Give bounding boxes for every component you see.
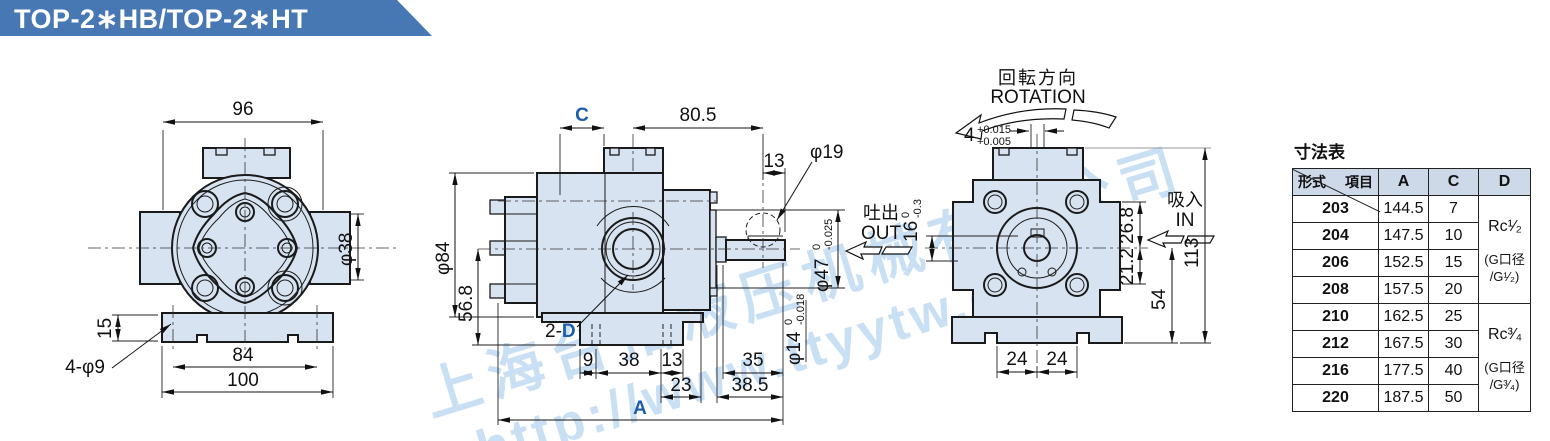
page-title: TOP-2∗HB/TOP-2∗HT [14,4,308,34]
d-main-label: Rc¹⁄₂ [1480,218,1530,236]
svg-text:φ47: φ47 [812,259,833,292]
a-cell: 157.5 [1379,277,1429,304]
model-cell: 206 [1293,250,1379,277]
d-group-cell: Rc¹⁄₂ (G口径 /G¹⁄₂) [1479,196,1531,304]
c-cell: 20 [1429,277,1479,304]
model-cell: 216 [1293,358,1379,385]
table-row: 210 162.5 25 Rc³⁄₄ (G口径 /G³⁄₄) [1293,304,1531,331]
svg-text:-0.3: -0.3 [912,199,924,218]
a-cell: 144.5 [1379,196,1429,223]
dim-side-body-dia: φ84 [433,241,454,275]
c-cell: 7 [1429,196,1479,223]
outlet-arrow-band [882,247,912,254]
dim-side-seg6: 38.5 [732,375,769,396]
dimension-table-title: 寸法表 [1294,138,1542,163]
table-corner-cell: 項目 形式 [1293,169,1379,196]
dim-rear-base-width: 100 [227,370,259,391]
dim-side-seg5: 23 [670,375,691,396]
svg-text:4: 4 [964,125,975,146]
a-cell: 162.5 [1379,304,1429,331]
a-cell: 152.5 [1379,250,1429,277]
a-cell: 187.5 [1379,385,1429,412]
corner-item-label: 項目 [1345,172,1373,192]
c-cell: 40 [1429,358,1479,385]
a-cell: 177.5 [1379,358,1429,385]
svg-text:+0.005: +0.005 [977,136,1011,148]
rotation-arrow-band [1072,110,1116,128]
inlet-label-jp: 吸入 [1167,190,1203,210]
inlet-label-en: IN [1176,210,1195,231]
dim-side-key-len: 13 [763,151,784,172]
drawing-page: .f{fill:#d8e3f1;stroke:#1a1a1a;stroke-wi… [0,0,1550,441]
dim-side-top: 80.5 [680,105,717,126]
pump-drawing: .f{fill:#d8e3f1;stroke:#1a1a1a;stroke-wi… [0,0,1290,441]
c-cell: 25 [1429,304,1479,331]
dimension-table: 寸法表 項目 形式 A C D 203 144.5 7 Rc¹⁄₂ (G口径 /… [1292,138,1542,412]
dim-side-seg4: 35 [742,350,763,371]
svg-text:φ14: φ14 [784,331,805,365]
outlet-label-jp: 吐出 [863,203,899,223]
svg-text:-0.025: -0.025 [823,219,835,250]
model-cell: 204 [1293,223,1379,250]
dim-rear-holes: 4-φ9 [65,357,105,378]
table-header-row: 項目 形式 A C D [1293,169,1531,196]
dim-side-total: A [633,398,647,419]
rotation-label-jp: 回転方向 [998,68,1078,88]
model-cell: 212 [1293,331,1379,358]
dim-rear-port-dia: φ38 [336,233,357,266]
corner-model-label: 形式 [1298,172,1326,192]
d-note-line1: (G口径 [1479,360,1530,376]
a-cell: 167.5 [1379,331,1429,358]
a-cell: 147.5 [1379,223,1429,250]
dim-side-seg3: 13 [661,350,682,371]
dim-side-lower: 56.8 [456,285,477,322]
c-cell: 50 [1429,385,1479,412]
svg-text:+0.015: +0.015 [977,124,1011,136]
outlet-label-en: OUT [861,223,902,244]
dim-rear-foot-height: 15 [95,318,116,339]
model-cell: 220 [1293,385,1379,412]
c-cell: 30 [1429,331,1479,358]
c-cell: 10 [1429,223,1479,250]
svg-text:16: 16 [901,221,922,242]
rear-view: 96 φ38 15 4-φ9 84 100 [65,99,400,398]
dim-front-bolt-l: 24 [1006,349,1028,370]
svg-text:0: 0 [811,244,823,250]
d-main-label: Rc³⁄₄ [1480,326,1530,344]
col-header-d: D [1479,169,1531,196]
dim-side-key-circle: φ19 [810,142,843,163]
model-cell: 203 [1293,196,1379,223]
d-group-cell: Rc³⁄₄ (G口径 /G³⁄₄) [1479,304,1531,412]
dim-side-c: C [575,105,589,126]
dim-side-seg1: 9 [583,350,594,371]
dim-rear-width: 96 [232,99,253,120]
svg-text:0: 0 [783,319,795,325]
d-note-line1: (G口径 [1479,252,1530,268]
svg-text:-0.018: -0.018 [795,294,807,325]
c-cell: 15 [1429,250,1479,277]
col-header-c: C [1429,169,1479,196]
rotation-label-en: ROTATION [990,87,1085,108]
dim-front-upper: 26.8 [1117,207,1138,244]
dim-side-seg2: 38 [618,350,639,371]
inlet-arrow [1148,231,1184,247]
d-note-line2: /G³⁄₄) [1479,377,1530,393]
dim-front-total-h: 113 [1182,238,1203,268]
model-cell: 208 [1293,277,1379,304]
ports-label: 2-D [545,321,576,342]
dim-rear-hole-span: 84 [232,345,254,366]
d-note-line2: /G¹⁄₂) [1479,269,1530,285]
dim-front-foot: 54 [1149,288,1170,310]
title-banner: TOP-2∗HB/TOP-2∗HT [0,0,432,36]
dim-front-bolt-r: 24 [1046,349,1068,370]
col-header-a: A [1379,169,1429,196]
table-row: 203 144.5 7 Rc¹⁄₂ (G口径 /G¹⁄₂) [1293,196,1531,223]
dim-front-lower: 21.2 [1117,248,1138,285]
model-cell: 210 [1293,304,1379,331]
svg-text:0: 0 [900,212,912,218]
